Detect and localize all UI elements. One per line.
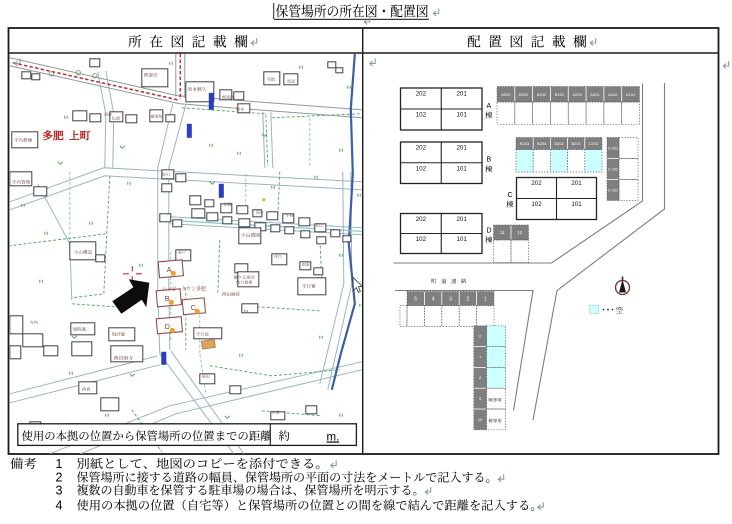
svg-text:12: 12 [517, 230, 523, 235]
svg-text:A101: A101 [626, 92, 636, 97]
svg-text:4: 4 [432, 296, 435, 302]
svg-text:6: 6 [479, 335, 481, 339]
svg-text:A: A [487, 103, 492, 110]
svg-text:C203: C203 [589, 141, 599, 146]
svg-text:1: 1 [484, 296, 487, 302]
svg-text:4: 4 [56, 499, 63, 513]
svg-text:10: 10 [478, 418, 482, 422]
svg-text:202: 202 [416, 145, 427, 152]
svg-text:C-102: C-102 [608, 167, 618, 171]
svg-text:11: 11 [500, 230, 505, 235]
svg-text:9: 9 [479, 397, 481, 401]
svg-text:B202: B202 [554, 141, 564, 146]
svg-text:102: 102 [416, 236, 427, 243]
svg-text:101: 101 [456, 112, 467, 119]
svg-text:B203: B203 [520, 141, 530, 146]
svg-text:102: 102 [416, 165, 427, 172]
svg-text:A201: A201 [590, 92, 600, 97]
svg-text:201: 201 [456, 216, 467, 223]
svg-text:202: 202 [416, 91, 427, 98]
svg-text:B201: B201 [519, 92, 529, 97]
svg-text:3: 3 [449, 296, 452, 302]
svg-text:B102: B102 [537, 92, 547, 97]
svg-text:C: C [508, 192, 513, 199]
svg-text:C-101: C-101 [608, 188, 618, 192]
svg-text:101: 101 [456, 165, 467, 172]
svg-text:202: 202 [416, 216, 427, 223]
svg-text:D: D [487, 228, 492, 235]
svg-text:201: 201 [456, 91, 467, 98]
svg-text:B202: B202 [501, 92, 511, 97]
svg-text:102: 102 [416, 112, 427, 119]
svg-text:102: 102 [531, 201, 542, 208]
svg-text:A202: A202 [572, 92, 582, 97]
svg-text:D: D [165, 322, 170, 331]
svg-text:C-201: C-201 [608, 146, 618, 150]
svg-text:7: 7 [479, 355, 481, 359]
svg-text:A102: A102 [608, 92, 618, 97]
svg-text:8: 8 [479, 376, 481, 380]
svg-text:B: B [487, 157, 492, 164]
svg-text:101: 101 [456, 236, 467, 243]
svg-text:B201: B201 [572, 141, 582, 146]
svg-text:101: 101 [571, 201, 582, 208]
svg-text:201: 201 [571, 180, 582, 187]
svg-text:5: 5 [414, 296, 417, 302]
svg-text:3: 3 [56, 484, 63, 498]
svg-text:m.: m. [327, 432, 340, 444]
svg-text:B204: B204 [537, 141, 547, 146]
svg-text:202: 202 [531, 180, 542, 187]
svg-text:201: 201 [456, 145, 467, 152]
svg-text:B101: B101 [555, 92, 565, 97]
svg-text:1: 1 [56, 457, 63, 471]
svg-text:2: 2 [467, 296, 470, 302]
